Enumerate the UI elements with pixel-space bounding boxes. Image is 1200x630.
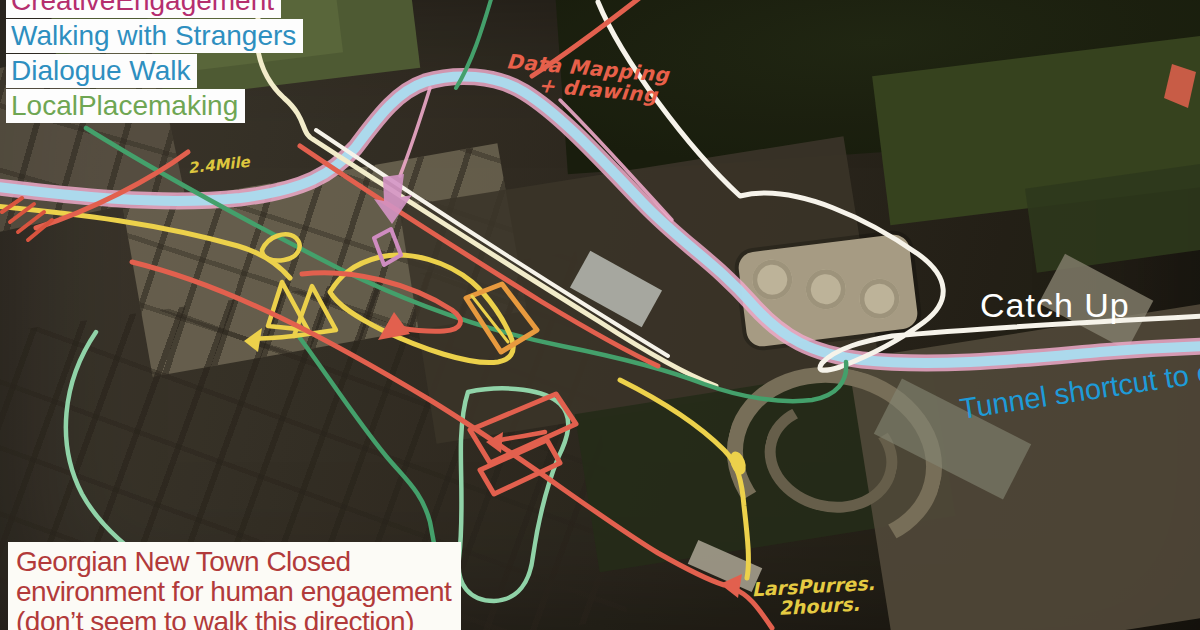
georgian-new-town-note: Georgian New Town Closed environment for… — [8, 542, 461, 630]
red-highlight-blob — [1164, 64, 1196, 108]
route-yellow-east — [620, 380, 748, 578]
route-pink-strand — [560, 100, 672, 220]
legend: CreativeEngagement Walking with Stranger… — [6, 0, 303, 124]
yellow-arrowhead — [244, 328, 262, 352]
legend-item-dialogue-walk: Dialogue Walk — [6, 54, 197, 88]
red-arrowhead — [378, 312, 410, 340]
route-mint-loop-center — [459, 388, 569, 601]
georgian-note-line: Georgian New Town Closed — [16, 547, 451, 577]
red-hatch-zone — [2, 198, 52, 240]
handwritten-route-end-note: LarsPurres. 2hours. — [751, 574, 876, 620]
route-red-street — [300, 146, 658, 366]
georgian-note-line: (don’t seem to walk this direction) — [16, 607, 451, 630]
route-red-southeast — [132, 262, 724, 585]
route-red-center — [302, 273, 460, 332]
legend-item-walking-with-strangers: Walking with Strangers — [6, 19, 303, 53]
legend-item-creative-engagement: CreativeEngagement — [6, 0, 281, 18]
catch-up-label: Catch Up — [980, 286, 1130, 325]
annotated-aerial-map: CreativeEngagement Walking with Stranger… — [0, 0, 1200, 630]
georgian-note-line: environment for human engagement — [16, 577, 451, 607]
yellow-marker-blob — [727, 449, 748, 476]
legend-item-local-placemaking: LocalPlacemaking — [6, 89, 245, 123]
route-yellow-loop — [330, 255, 513, 363]
red-arrowhead — [720, 574, 742, 598]
